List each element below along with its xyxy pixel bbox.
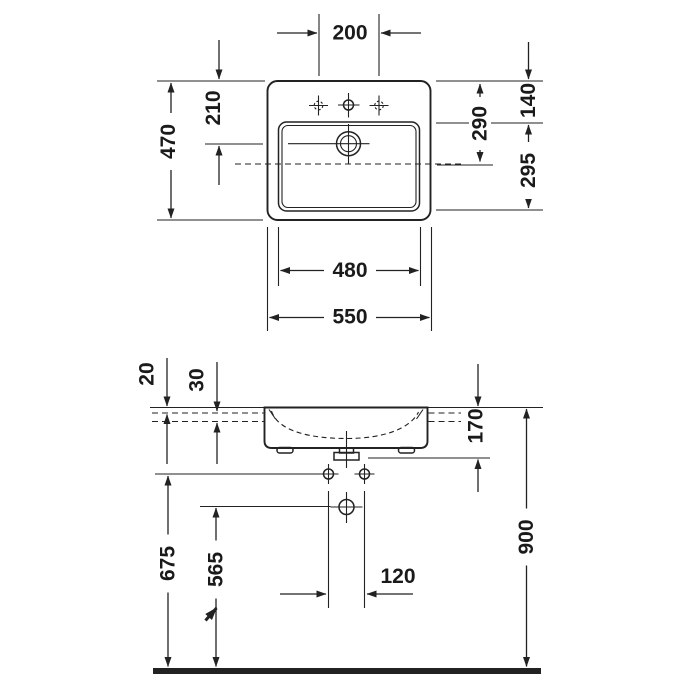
fixing-hole-left	[319, 464, 339, 484]
washbasin-drawing: 200 470 210 140 290 295	[0, 0, 700, 700]
plan-extension-lines	[157, 14, 543, 331]
bowl-hidden-line	[272, 411, 419, 439]
plan-view: 200 470 210 140 290 295	[157, 14, 543, 331]
dim-120-label: 120	[380, 565, 415, 588]
dim-470-label: 470	[157, 124, 180, 159]
floor-line	[153, 668, 541, 674]
dim-675-label: 675	[157, 546, 180, 581]
dim-overall-depth: 470	[157, 83, 180, 218]
dim-overall-width: 550	[270, 306, 430, 329]
dim-170-label: 170	[465, 408, 488, 443]
front-view: 20 30 170 900 675 56	[136, 358, 544, 674]
faucet-hole-left	[309, 96, 328, 116]
waste-outlet	[331, 492, 363, 523]
dim-480-label: 480	[332, 259, 367, 282]
faucet-hole-center	[338, 93, 360, 118]
dim-rim-above-counter: 20	[136, 358, 168, 464]
dim-fixing-height: 675	[157, 476, 180, 667]
dim-edge-to-drain: 210	[202, 40, 225, 185]
dim-basin-depth: 295	[517, 125, 540, 208]
dim-210-label: 210	[202, 90, 225, 125]
dim-30-label: 30	[186, 368, 209, 391]
dim-edge-to-overflow: 290	[469, 84, 492, 162]
dim-faucet-spacing: 200	[277, 22, 421, 45]
dim-290-label: 290	[469, 106, 492, 141]
dim-200-label: 200	[332, 22, 367, 45]
dim-rim-height: 900	[515, 409, 538, 667]
dim-fixing-spacing: 120	[280, 565, 416, 594]
faucet-hole-right	[370, 96, 389, 116]
dim-edge-to-basin: 140	[517, 42, 540, 118]
dim-outlet-height: 565	[205, 508, 228, 667]
dim-900-label: 900	[515, 519, 538, 554]
technical-drawing-page: 200 470 210 140 290 295	[0, 0, 700, 700]
cursor-arrow	[206, 608, 217, 621]
fixing-hole-right	[355, 464, 375, 484]
dim-565-label: 565	[205, 552, 228, 587]
dim-550-label: 550	[332, 306, 367, 329]
dim-basin-width: 480	[281, 259, 419, 282]
dim-140-label: 140	[517, 83, 540, 118]
dim-295-label: 295	[517, 153, 540, 188]
dim-20-label: 20	[136, 362, 159, 385]
drain-hole	[288, 124, 370, 164]
dim-rim-to-outlet: 170	[465, 364, 488, 492]
